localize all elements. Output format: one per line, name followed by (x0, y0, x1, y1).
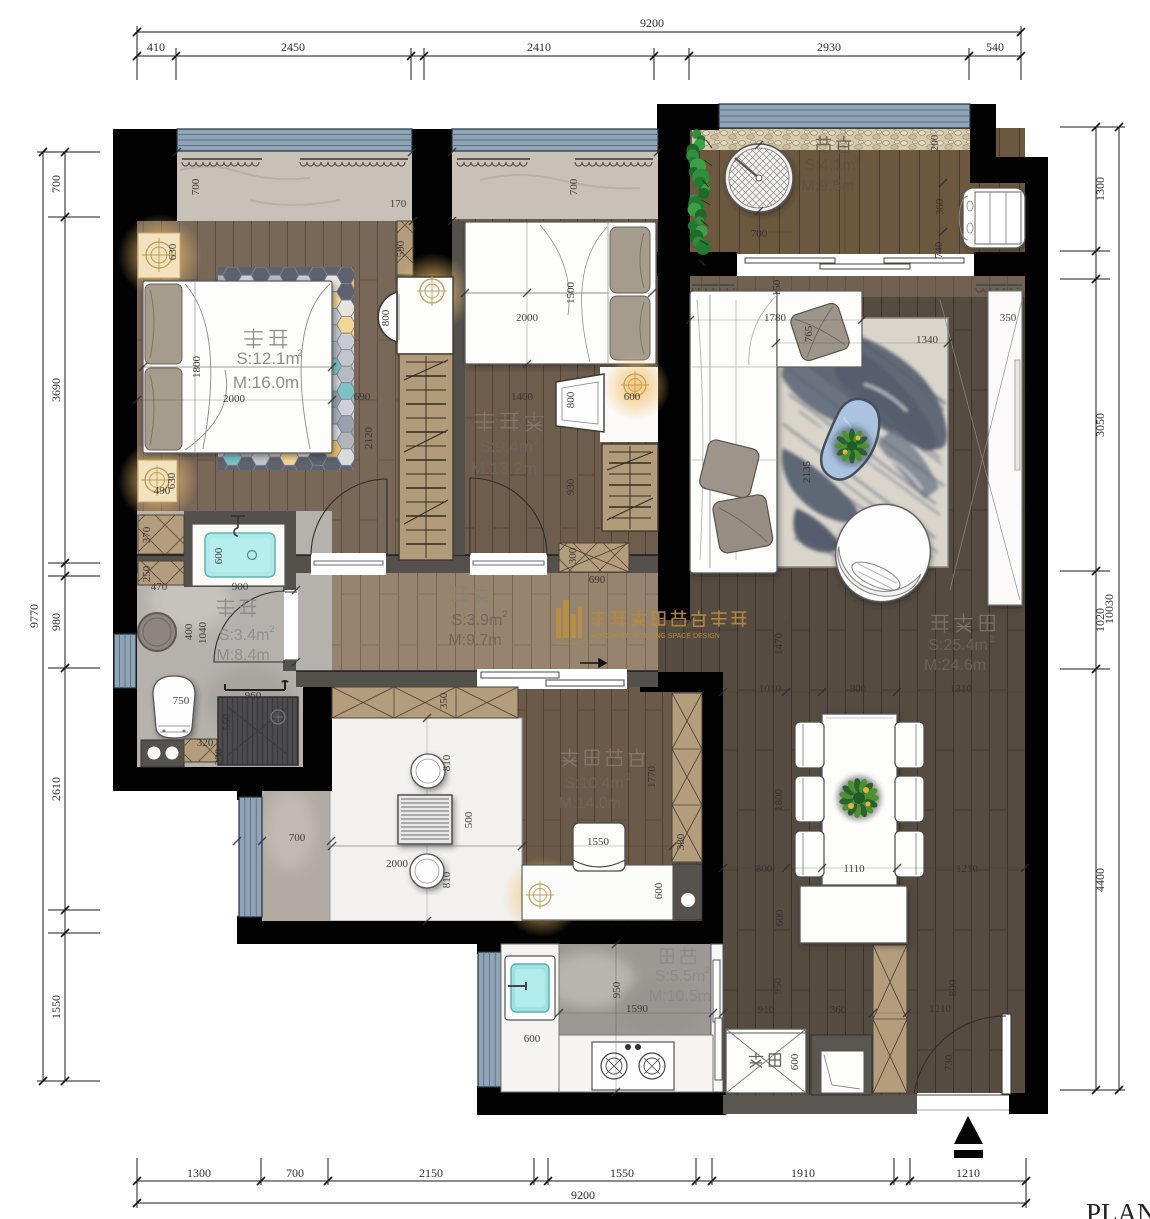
svg-text:550: 550 (221, 713, 233, 730)
svg-text:2000: 2000 (386, 858, 409, 870)
svg-text:490: 490 (154, 485, 171, 497)
svg-text:170: 170 (390, 198, 407, 210)
svg-text:9200: 9200 (640, 16, 664, 30)
svg-text:1010: 1010 (759, 683, 782, 695)
svg-text:700: 700 (190, 178, 202, 195)
svg-text:2: 2 (625, 772, 630, 782)
svg-text:4400: 4400 (1093, 868, 1107, 892)
svg-text:980: 980 (49, 613, 63, 631)
svg-text:9200: 9200 (571, 1188, 595, 1202)
svg-text:1110: 1110 (843, 863, 865, 875)
svg-text:2000: 2000 (223, 393, 246, 405)
svg-text:1770: 1770 (646, 766, 658, 789)
svg-text:1210: 1210 (929, 1003, 952, 1015)
svg-text:3050: 3050 (1093, 413, 1107, 437)
svg-text:M:16.0m: M:16.0m (233, 373, 299, 392)
svg-text:M:10.5m: M:10.5m (649, 988, 711, 1005)
svg-text:PLAN: PLAN (1086, 1198, 1150, 1219)
svg-text:360: 360 (934, 198, 946, 215)
svg-text:950: 950 (611, 981, 623, 998)
svg-text:600: 600 (213, 547, 225, 564)
svg-text:S:10.4m: S:10.4m (564, 775, 624, 792)
svg-text:M:24.6m: M:24.6m (924, 657, 986, 674)
svg-text:600: 600 (524, 1033, 541, 1045)
svg-text:2: 2 (989, 634, 994, 644)
svg-text:2: 2 (704, 965, 709, 975)
svg-text:700: 700 (568, 178, 580, 195)
svg-text:400: 400 (183, 623, 195, 640)
svg-text:1400: 1400 (511, 391, 534, 403)
svg-text:1020: 1020 (1093, 608, 1107, 632)
svg-text:2: 2 (502, 609, 507, 619)
svg-text:700: 700 (49, 175, 63, 193)
svg-text:470: 470 (151, 581, 168, 593)
svg-text:1500: 1500 (565, 282, 577, 305)
svg-text:1210: 1210 (956, 863, 979, 875)
svg-text:700: 700 (751, 228, 768, 240)
svg-text:600: 600 (789, 1053, 801, 1070)
svg-text:2: 2 (269, 624, 274, 634)
svg-text:930: 930 (565, 478, 577, 495)
svg-text:800: 800 (756, 863, 773, 875)
svg-text:S:5.5m: S:5.5m (655, 968, 706, 985)
svg-text:360: 360 (830, 1004, 847, 1016)
svg-text:1550: 1550 (49, 995, 63, 1019)
svg-text:350: 350 (438, 692, 450, 709)
svg-text:810: 810 (441, 871, 453, 888)
svg-text:S:4.1m: S:4.1m (805, 157, 856, 174)
svg-text:1590: 1590 (626, 1003, 649, 1015)
svg-text:S:3.9m: S:3.9m (452, 612, 503, 629)
svg-text:1310: 1310 (950, 683, 973, 695)
svg-text:S:12.1m: S:12.1m (236, 349, 299, 368)
svg-text:M:13.2m: M:13.2m (471, 459, 537, 478)
svg-text:500: 500 (463, 811, 475, 828)
svg-text:740: 740 (933, 241, 945, 258)
svg-text:2000: 2000 (516, 312, 539, 324)
svg-text:230: 230 (213, 748, 225, 765)
svg-text:2450: 2450 (281, 40, 305, 54)
svg-text:2930: 2930 (817, 40, 841, 54)
svg-text:900: 900 (232, 581, 249, 593)
svg-text:MOKCHUEN BUILDING SPACE DESIGN: MOKCHUEN BUILDING SPACE DESIGN (590, 633, 720, 640)
svg-text:M:8.4m: M:8.4m (216, 647, 269, 664)
svg-text:370: 370 (141, 526, 153, 543)
svg-text:S:9.4m: S:9.4m (479, 437, 533, 456)
svg-text:2: 2 (854, 154, 859, 164)
svg-text:910: 910 (758, 1004, 775, 1016)
svg-text:320: 320 (197, 737, 214, 749)
svg-text:410: 410 (147, 40, 165, 54)
svg-text:S:3.4m: S:3.4m (219, 627, 270, 644)
svg-text:540: 540 (986, 40, 1004, 54)
svg-text:M:14.0m: M:14.0m (559, 795, 621, 812)
svg-text:1210: 1210 (956, 1166, 980, 1180)
svg-text:150: 150 (771, 279, 783, 296)
svg-text:1300: 1300 (187, 1166, 211, 1180)
svg-text:350: 350 (1000, 312, 1017, 324)
svg-text:1340: 1340 (916, 334, 939, 346)
svg-text:2150: 2150 (419, 1166, 443, 1180)
svg-text:2135: 2135 (801, 461, 813, 484)
svg-text:810: 810 (441, 754, 453, 771)
svg-text:630: 630 (167, 243, 179, 260)
svg-text:MOKCHUEN: MOKCHUEN (556, 641, 579, 646)
svg-text:3690: 3690 (49, 378, 63, 402)
svg-text:950: 950 (772, 977, 784, 994)
svg-text:1550: 1550 (610, 1166, 634, 1180)
svg-text:S:25.4m: S:25.4m (928, 637, 988, 654)
svg-text:600: 600 (774, 909, 786, 926)
svg-text:300: 300 (567, 547, 579, 564)
svg-text:250: 250 (141, 565, 153, 582)
svg-text:1910: 1910 (791, 1166, 815, 1180)
svg-text:1040: 1040 (197, 622, 209, 645)
svg-text:2: 2 (533, 436, 538, 446)
svg-text:1800: 1800 (191, 356, 203, 379)
svg-text:9770: 9770 (27, 604, 41, 628)
svg-text:690: 690 (589, 574, 606, 586)
svg-text:700: 700 (286, 1166, 304, 1180)
svg-text:700: 700 (289, 832, 306, 844)
svg-text:380: 380 (675, 833, 687, 850)
svg-text:1800: 1800 (773, 789, 785, 812)
svg-text:M:9.7m: M:9.7m (448, 632, 501, 649)
svg-text:1470: 1470 (773, 633, 785, 656)
svg-text:2410: 2410 (527, 40, 551, 54)
svg-text:600: 600 (624, 391, 641, 403)
svg-text:800: 800 (947, 979, 959, 996)
svg-text:1780: 1780 (764, 312, 787, 324)
svg-text:800: 800 (380, 309, 392, 326)
svg-text:750: 750 (173, 695, 190, 707)
svg-text:600: 600 (653, 882, 665, 899)
svg-text:800: 800 (565, 391, 577, 408)
svg-text:1550: 1550 (587, 836, 610, 848)
svg-text:765: 765 (803, 325, 815, 342)
svg-text:200: 200 (929, 134, 941, 151)
svg-text:M:9.5m: M:9.5m (801, 178, 854, 195)
svg-text:730: 730 (943, 1054, 955, 1071)
svg-text:590: 590 (395, 240, 407, 257)
svg-text:2120: 2120 (363, 427, 375, 450)
svg-text:690: 690 (354, 391, 371, 403)
svg-text:800: 800 (850, 683, 867, 695)
svg-text:960: 960 (245, 690, 262, 702)
svg-text:1300: 1300 (1093, 177, 1107, 201)
svg-text:2: 2 (297, 348, 302, 358)
svg-text:2610: 2610 (49, 777, 63, 801)
